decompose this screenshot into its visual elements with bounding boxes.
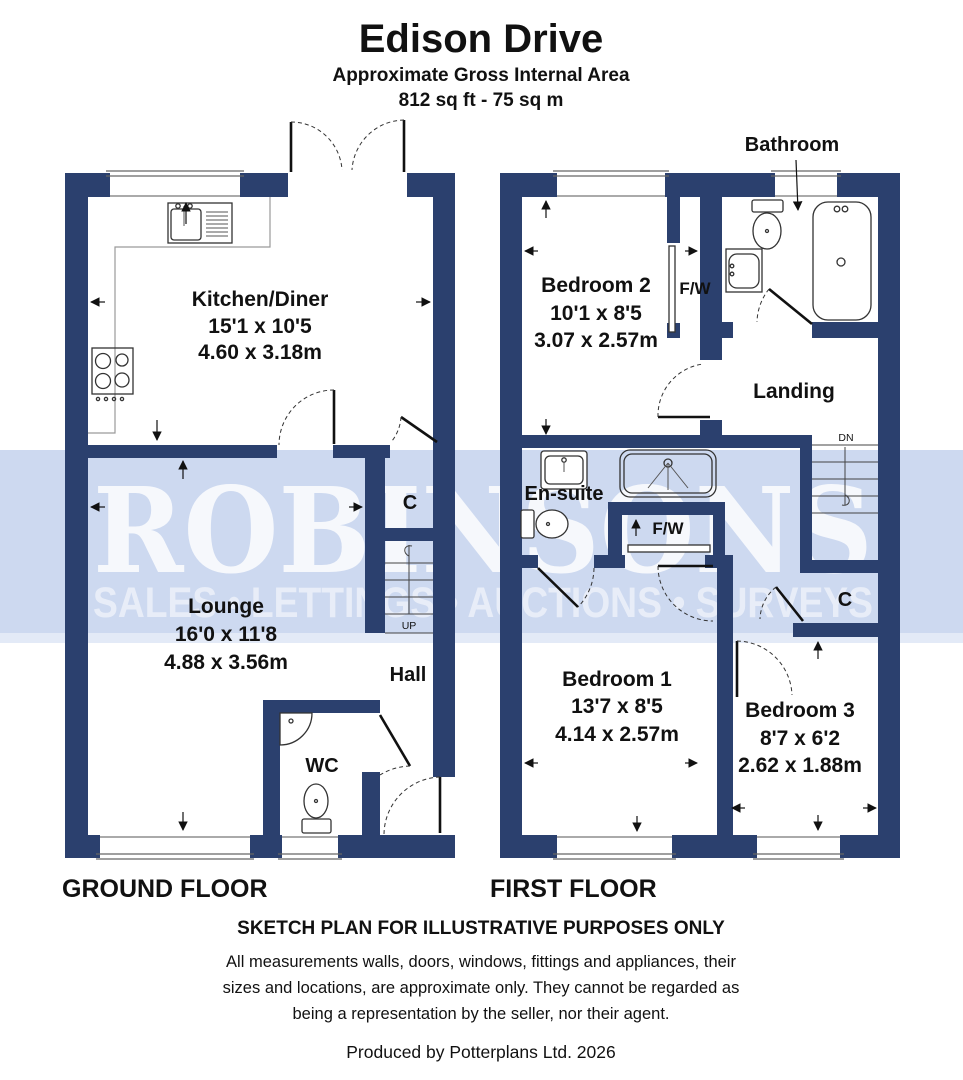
landing-label: Landing (753, 380, 835, 403)
kitchen-hob (92, 348, 133, 401)
header: Edison Drive Approximate Gross Internal … (332, 17, 629, 111)
bathroom-fixtures (726, 200, 871, 320)
floorplan-page: ROBINSONS SALES • LETTINGS • AUCTIONS • … (0, 0, 963, 1080)
ground-cupboard-label: C (403, 492, 417, 514)
lounge-label: Lounge (188, 595, 264, 618)
sketch-note: SKETCH PLAN FOR ILLUSTRATIVE PURPOSES ON… (237, 918, 725, 939)
kitchen-imperial: 15'1 x 10'5 (208, 315, 312, 338)
disclaimer-line2: sizes and locations, are approximate onl… (223, 979, 740, 997)
first-floor-title: FIRST FLOOR (490, 875, 657, 903)
bedroom2-metric: 3.07 x 2.57m (534, 329, 658, 352)
landing-fw-label: F/W (652, 519, 684, 538)
bathroom-label: Bathroom (745, 134, 839, 156)
disclaimer-line1: All measurements walls, doors, windows, … (226, 953, 736, 971)
page-title: Edison Drive (359, 17, 604, 61)
bedroom2-label: Bedroom 2 (541, 274, 651, 297)
lounge-metric: 4.88 x 3.56m (164, 651, 288, 674)
page-area: 812 sq ft - 75 sq m (399, 90, 564, 111)
ground-floor-title: GROUND FLOOR (62, 875, 268, 903)
bedroom1-label: Bedroom 1 (562, 668, 672, 691)
first-cupboard-label: C (838, 589, 852, 611)
bedroom2-wardrobe-door (669, 246, 675, 332)
bedroom3-metric: 2.62 x 1.88m (738, 754, 862, 777)
bedroom2-fw-label: F/W (679, 279, 711, 298)
bathroom-pointer-arrow (796, 160, 798, 210)
ensuite-toilet-cistern (521, 510, 534, 538)
bathroom-bath (813, 202, 871, 320)
bathroom-toilet (753, 213, 781, 249)
stairs-up-label: UP (402, 620, 417, 632)
wc-toilet (304, 784, 328, 818)
kitchen-sink (168, 203, 232, 243)
kitchen-metric: 4.60 x 3.18m (198, 341, 322, 364)
floorplan-drawing: ROBINSONS SALES • LETTINGS • AUCTIONS • … (0, 0, 963, 1080)
bedroom3-label: Bedroom 3 (745, 699, 855, 722)
footer: SKETCH PLAN FOR ILLUSTRATIVE PURPOSES ON… (223, 918, 740, 1062)
bathroom-toilet-cistern (752, 200, 783, 212)
ensuite-label: En-suite (525, 483, 604, 505)
hall-label: Hall (390, 664, 427, 686)
page-subtitle: Approximate Gross Internal Area (332, 65, 629, 86)
bedroom2-imperial: 10'1 x 8'5 (550, 302, 642, 325)
lounge-imperial: 16'0 x 11'8 (175, 623, 278, 646)
bedroom3-imperial: 8'7 x 6'2 (760, 727, 840, 750)
bedroom1-imperial: 13'7 x 8'5 (571, 695, 663, 718)
disclaimer-line3: being a representation by the seller, no… (293, 1005, 670, 1023)
wc-basin (280, 713, 312, 745)
kitchen-label: Kitchen/Diner (192, 288, 329, 311)
wc-label: WC (305, 755, 338, 777)
stairs-dn-label: DN (838, 432, 853, 444)
ensuite-toilet (536, 510, 568, 538)
produced-by: Produced by Potterplans Ltd. 2026 (346, 1042, 616, 1062)
landing-wardrobe-door (628, 545, 710, 552)
bedroom1-metric: 4.14 x 2.57m (555, 723, 679, 746)
